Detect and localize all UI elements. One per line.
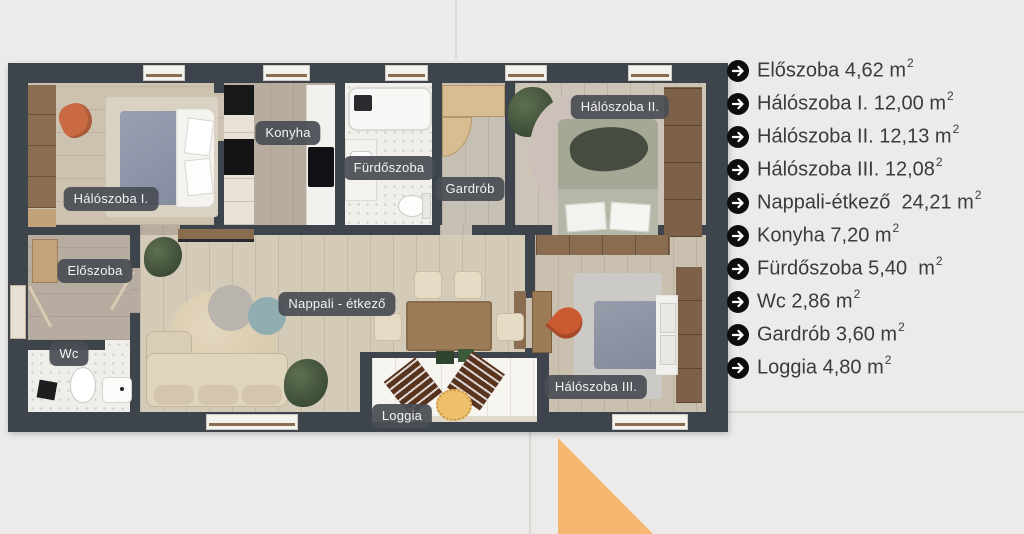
legend-label: Konyha 7,20 m2 [757,223,899,248]
legend-item-nappali: Nappali-étkező 24,21 m2 [727,191,981,214]
room-label-furdoszoba: Fürdőszoba [344,156,435,180]
sink [102,377,132,403]
pillow [660,303,676,333]
round-rug [436,389,472,421]
room-label-eloszoba: Előszoba [57,259,132,283]
window [385,65,428,81]
legend-label: Hálószoba II. 12,13 m2 [757,124,959,149]
pillow [184,118,214,157]
loggia-wall-stub [360,352,372,412]
legend-item-eloszoba: Előszoba 4,62 m2 [727,59,981,82]
bed-duvet [594,301,658,369]
arrow-icon [727,93,749,115]
room-label-nappali: Nappali - étkező [278,292,395,316]
legend-item-haloszoba-1: Hálószoba I. 12,00 m2 [727,92,981,115]
cabinet [28,209,56,227]
background-divider-bottom [529,432,531,534]
window [206,414,298,430]
legend-item-wc: Wc 2,86 m2 [727,290,981,313]
arrow-icon [727,291,749,313]
dining-chair [414,271,442,299]
legend-label: Hálószoba III. 12,082 [757,157,943,182]
wall [432,83,442,225]
wall [214,83,224,93]
legend-item-haloszoba-2: Hálószoba II. 12,13 m2 [727,125,981,148]
dining-chair [374,313,402,341]
legend-item-konyha: Konyha 7,20 m2 [727,224,981,247]
arrow-icon [727,324,749,346]
dining-chair [496,313,524,341]
room-label-loggia: Loggia [372,404,432,428]
media-cabinet [178,229,254,242]
wardrobe [676,267,702,403]
window [628,65,672,81]
pillow [660,335,676,365]
legend-label: Fürdőszoba 5,40 m2 [757,256,943,281]
door-gap-gardrob [440,225,472,235]
legend-label: Loggia 4,80 m2 [757,355,891,380]
arrow-icon [727,357,749,379]
room-label-konyha: Konyha [255,121,320,145]
window [612,414,688,430]
pillow [609,202,651,233]
dining-table [406,301,492,351]
fridge [224,85,254,115]
toilet [70,367,96,403]
window [263,65,310,81]
legend-label: Hálószoba I. 12,00 m2 [757,91,954,116]
sofa-cushion [198,385,238,405]
round-table [208,285,254,331]
wardrobe-top [536,235,670,255]
legend-item-loggia: Loggia 4,80 m2 [727,356,981,379]
legend-label: Előszoba 4,62 m2 [757,58,914,83]
legend: Előszoba 4,62 m2 Hálószoba I. 12,00 m2 H… [727,59,981,379]
orange-triangle-decoration [558,438,653,534]
wall [335,83,345,225]
wardrobe [28,85,56,208]
arrow-icon [727,60,749,82]
arrow-icon [727,258,749,280]
window [143,65,185,81]
pillow [565,202,607,233]
entrance-door-opening [10,285,26,339]
room-label-haloszoba-3: Hálószoba III. [545,375,647,399]
wall [525,235,535,298]
legend-item-haloszoba-3: Hálószoba III. 12,082 [727,158,981,181]
pillow [184,158,214,197]
wardrobe [664,87,702,237]
window [505,65,547,81]
tap [120,387,124,391]
legend-label: Nappali-étkező 24,21 m2 [757,190,981,215]
floor-plan: Hálószoba I. Konyha Fürdőszoba Gardrób H… [8,63,728,432]
room-label-gardrob: Gardrób [435,177,504,201]
room-label-haloszoba-1: Hálószoba I. [64,187,159,211]
legend-label: Wc 2,86 m2 [757,289,860,314]
room-label-wc: Wc [49,342,88,366]
sofa-cushion [154,385,194,405]
arrow-icon [727,126,749,148]
background-divider-right [722,411,1024,413]
legend-item-furdoszoba: Fürdőszoba 5,40 m2 [727,257,981,280]
cooktop [308,147,334,187]
arrow-icon [727,159,749,181]
arrow-icon [727,225,749,247]
trash-bin [37,380,58,401]
closet-shelf [442,85,505,117]
background-divider-top [455,0,457,58]
floorplan-page: Hálószoba I. Konyha Fürdőszoba Gardrób H… [0,0,1024,534]
legend-item-gardrob: Gardrób 3,60 m2 [727,323,981,346]
dining-chair [454,271,482,299]
bath-faucet [354,95,372,111]
arrow-icon [727,192,749,214]
room-label-haloszoba-2: Hálószoba II. [571,95,669,119]
toilet-tank [422,193,431,219]
door-gap-corridor [140,225,180,235]
legend-label: Gardrób 3,60 m2 [757,322,905,347]
oven [224,139,254,175]
planter-box [436,351,454,364]
sofa-cushion [242,385,282,405]
hall-bench [32,239,58,283]
wall [472,225,552,235]
